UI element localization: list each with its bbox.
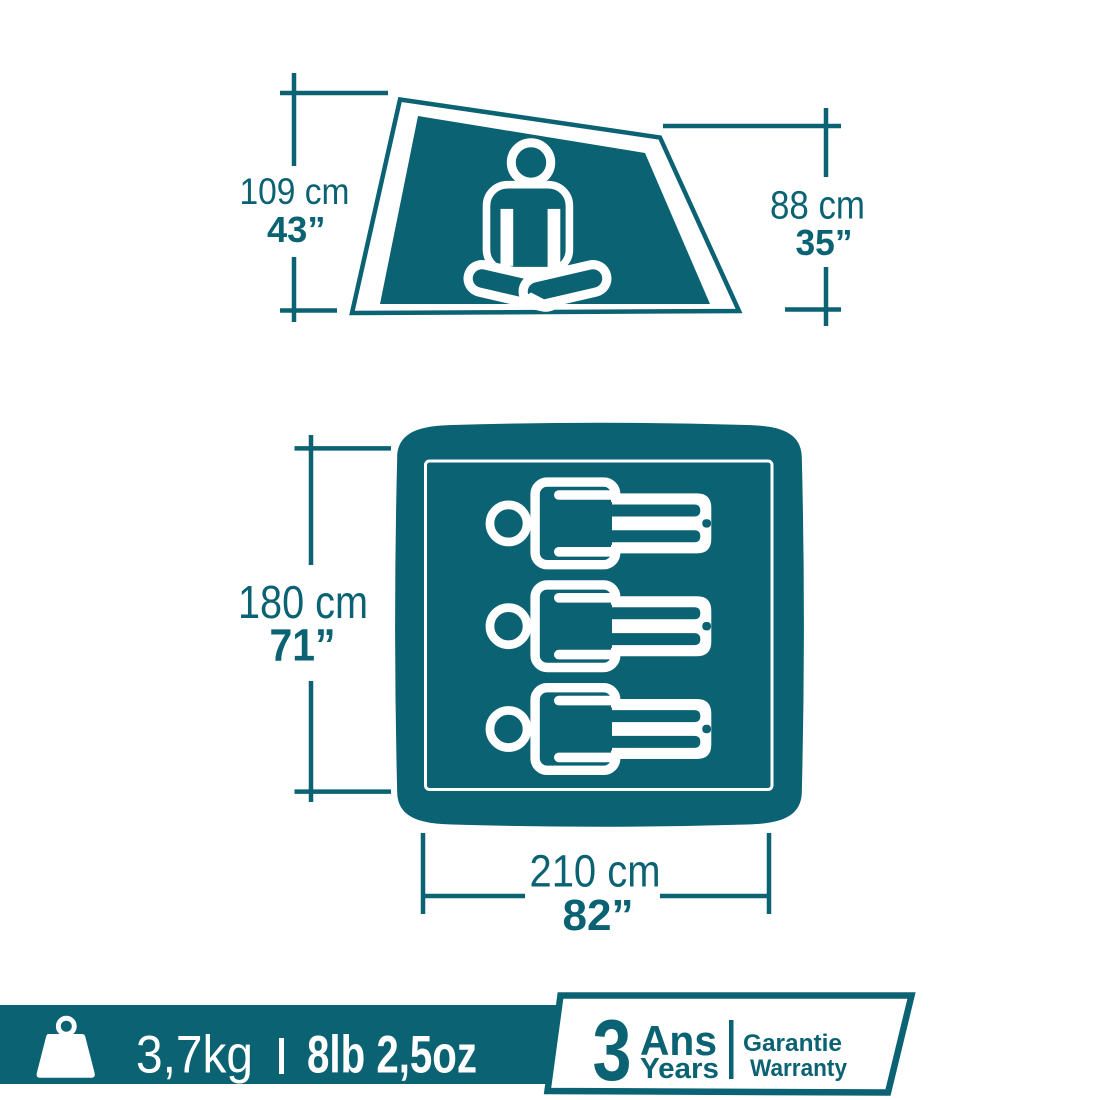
svg-text:3,7kg: 3,7kg — [136, 1026, 253, 1085]
svg-text:43”: 43” — [267, 209, 326, 250]
svg-text:3: 3 — [593, 1003, 632, 1099]
svg-text:82”: 82” — [563, 891, 634, 940]
svg-text:71”: 71” — [270, 620, 336, 671]
svg-text:109 cm: 109 cm — [240, 171, 350, 212]
svg-text:Garantie: Garantie — [743, 1030, 842, 1057]
svg-text:Years: Years — [640, 1053, 719, 1085]
svg-text:8lb 2,5oz: 8lb 2,5oz — [307, 1026, 477, 1085]
svg-text:88 cm: 88 cm — [770, 184, 865, 228]
svg-text:210 cm: 210 cm — [530, 845, 661, 896]
svg-text:Warranty: Warranty — [750, 1055, 848, 1082]
svg-text:35”: 35” — [796, 222, 853, 263]
